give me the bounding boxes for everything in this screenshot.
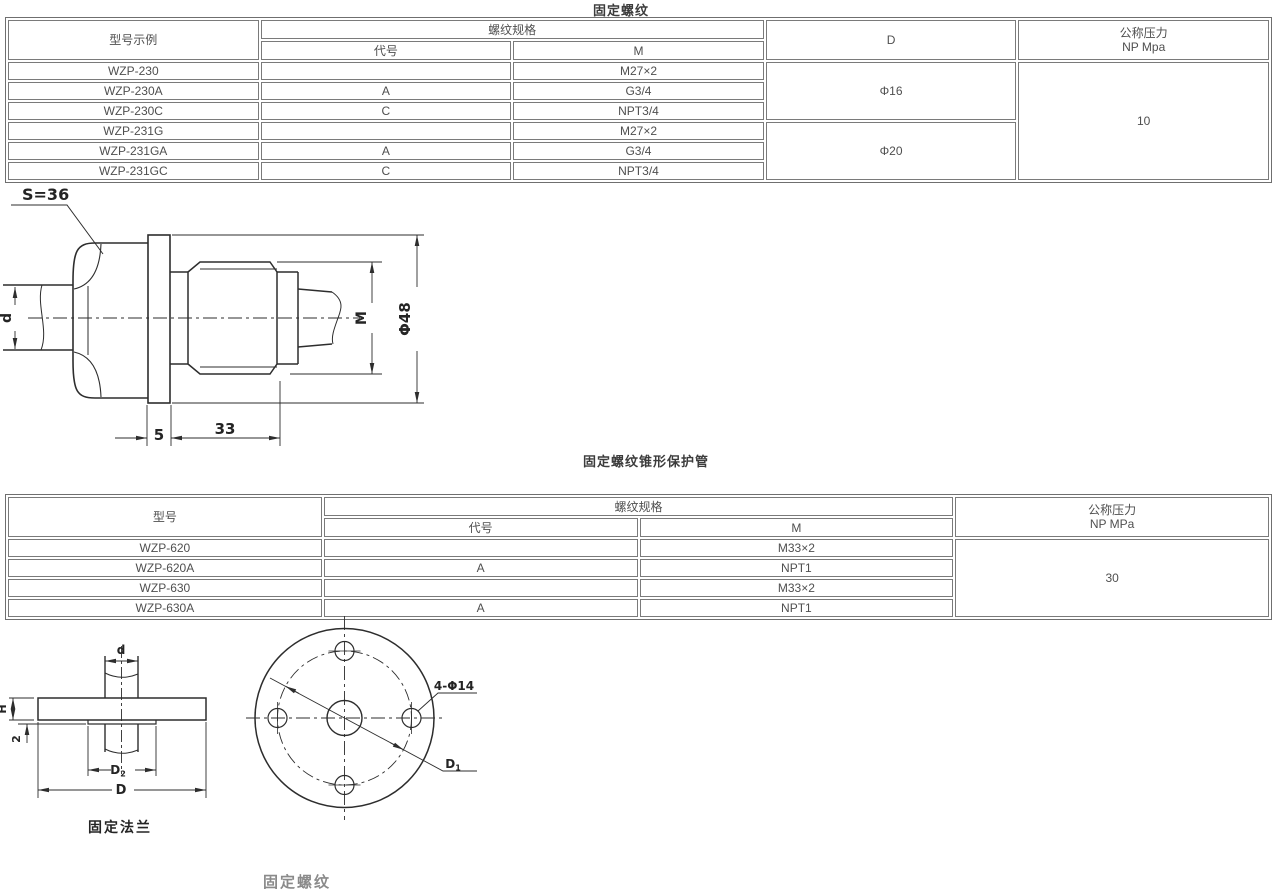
code-cell: C — [261, 102, 512, 120]
outer-dia-label: D — [116, 783, 127, 798]
table1-col-pressure: 公称压力 NP Mpa — [1018, 20, 1269, 60]
table2-col-pressure: 公称压力 NP MPa — [955, 497, 1269, 537]
model-cell: WZP-620 — [8, 539, 322, 557]
model-cell: WZP-230A — [8, 82, 259, 100]
code-cell: A — [324, 559, 638, 577]
table1-col-m: M — [513, 41, 764, 60]
flange-plate — [148, 235, 170, 403]
dia48-dim-label: Φ48 — [396, 302, 414, 336]
code-cell: A — [261, 142, 512, 160]
tapered-tube-spec-table: 型号 螺纹规格 公称压力 NP MPa 代号 M WZP-620 M33×2 3… — [5, 494, 1272, 620]
m-cell: G3/4 — [513, 82, 764, 100]
boss-thickness-label: 2 — [10, 735, 23, 743]
table2-header-row1: 型号 螺纹规格 公称压力 NP MPa — [8, 497, 1269, 516]
bottom-extension-lines — [147, 381, 280, 446]
m-cell: NPT1 — [640, 599, 954, 617]
d2-extension-lines — [88, 726, 156, 776]
code-cell — [324, 579, 638, 597]
table1-col-d: D — [766, 20, 1017, 60]
tube-break-line — [40, 285, 43, 350]
section2-title: 固定螺纹锥形保护管 — [0, 451, 1284, 470]
fixed-thread-fitting-drawing: S=36 d M Φ48 5 33 — [0, 183, 440, 455]
table-row: WZP-620 M33×2 30 — [8, 539, 1269, 557]
boss-dia-letter: D — [110, 763, 120, 777]
model-cell: WZP-230 — [8, 62, 259, 80]
d1-arrow-lower-right — [390, 743, 403, 750]
m-dim-label: M — [354, 311, 370, 325]
m-cell: M33×2 — [640, 539, 954, 557]
dim5-label: 5 — [154, 426, 164, 444]
d-value-cell: Φ20 — [766, 122, 1017, 180]
table2-col-code: 代号 — [324, 518, 638, 537]
spec-document-page: { "page": { "background": "#ffffff", "dr… — [0, 0, 1284, 879]
table1-col-thread-spec: 螺纹规格 — [261, 20, 764, 39]
model-cell: WZP-231G — [8, 122, 259, 140]
s36-leader-line — [11, 205, 103, 254]
model-cell: WZP-230C — [8, 102, 259, 120]
flange-caption: 固定法兰 — [88, 819, 152, 836]
clipped-bottom-label: 固定螺纹 — [263, 871, 331, 892]
table2-col-thread-spec: 螺纹规格 — [324, 497, 954, 516]
m-cell: NPT3/4 — [513, 162, 764, 180]
model-cell: WZP-231GA — [8, 142, 259, 160]
m-cell: M27×2 — [513, 62, 764, 80]
bolt-holes-label: 4-Φ14 — [434, 679, 474, 693]
fixed-flange-side-drawing: d H 2 D2 D 固定法兰 — [0, 640, 228, 845]
hex-nut-outline — [73, 243, 148, 398]
code-cell — [261, 122, 512, 140]
flange-height-label: H — [0, 704, 9, 713]
m-cell: NPT1 — [640, 559, 954, 577]
table1-col-code: 代号 — [261, 41, 512, 60]
dim33-label: 33 — [215, 420, 236, 438]
m-cell: M27×2 — [513, 122, 764, 140]
bolt-circle-subscript: 1 — [455, 764, 461, 773]
m-cell: M33×2 — [640, 579, 954, 597]
m-cell: NPT3/4 — [513, 102, 764, 120]
model-cell: WZP-630 — [8, 579, 322, 597]
d-value-cell: Φ16 — [766, 62, 1017, 120]
bolt-circle-letter: D — [445, 757, 455, 771]
pressure-value-cell: 10 — [1018, 62, 1269, 180]
hex-size-label: S=36 — [22, 185, 69, 204]
pressure-label-cn: 公称压力 — [958, 503, 1266, 517]
code-cell: A — [261, 82, 512, 100]
d-dim-label: d — [0, 313, 15, 323]
fixed-flange-face-drawing: 4-Φ14 D1 — [240, 612, 488, 827]
bolt-circle-dia-label: D1 — [445, 757, 461, 773]
table2-col-model: 型号 — [8, 497, 322, 537]
boss-dia-subscript: 2 — [120, 770, 126, 779]
table-row: WZP-230 M27×2 Φ16 10 — [8, 62, 1269, 80]
bolt-holes-leader-line — [418, 693, 477, 711]
code-cell: C — [261, 162, 512, 180]
m-cell: G3/4 — [513, 142, 764, 160]
pressure-label-unit: NP Mpa — [1021, 40, 1266, 54]
flange-plate — [38, 698, 206, 720]
fixed-thread-spec-table: 型号示例 螺纹规格 D 公称压力 NP Mpa 代号 M WZP-230 M27… — [5, 17, 1272, 183]
tube-dia-label: d — [117, 643, 126, 657]
table1-col-model: 型号示例 — [8, 20, 259, 60]
table1-header-row1: 型号示例 螺纹规格 D 公称压力 NP Mpa — [8, 20, 1269, 39]
code-cell — [324, 539, 638, 557]
model-cell: WZP-620A — [8, 559, 322, 577]
pressure-label-unit: NP MPa — [958, 517, 1266, 531]
code-cell — [261, 62, 512, 80]
table2-col-m: M — [640, 518, 954, 537]
pressure-label-cn: 公称压力 — [1021, 26, 1266, 40]
boss-dia-label: D2 — [110, 763, 126, 779]
pressure-value-cell: 30 — [955, 539, 1269, 617]
d1-arrow-upper-left — [286, 686, 299, 693]
model-cell: WZP-231GC — [8, 162, 259, 180]
